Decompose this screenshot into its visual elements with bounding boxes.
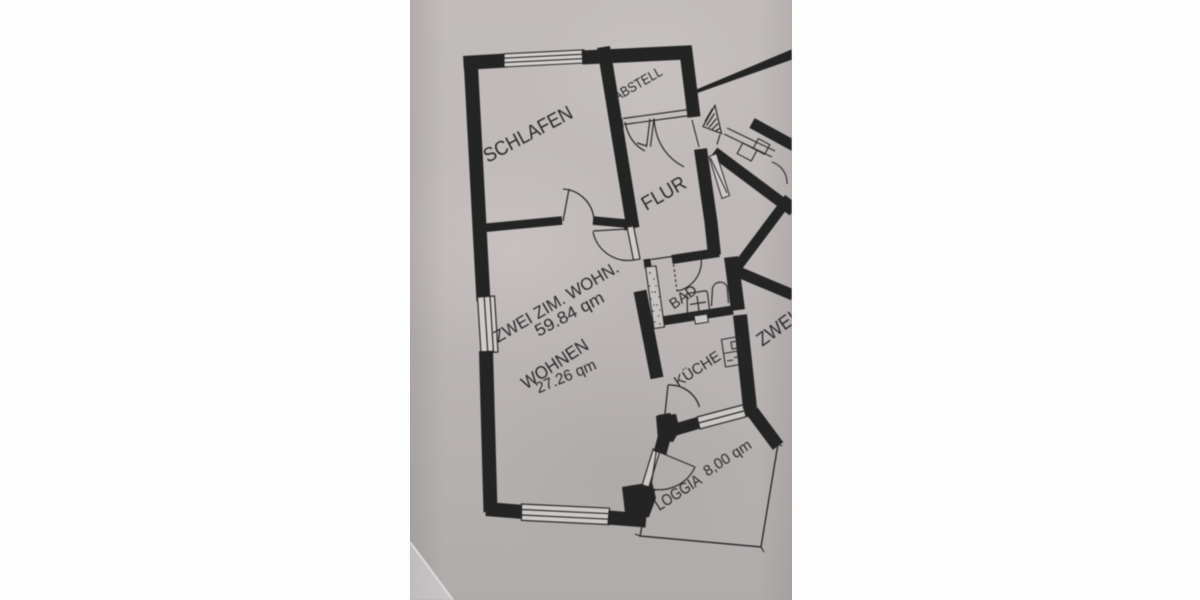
- svg-text:ZWEI: ZWEI: [753, 308, 801, 351]
- svg-text:SCHLAFEN: SCHLAFEN: [480, 102, 577, 167]
- svg-text:LOGGIA: LOGGIA: [652, 472, 705, 515]
- svg-text:BAD: BAD: [666, 282, 700, 313]
- svg-text:FLUR: FLUR: [638, 172, 691, 215]
- svg-text:KÜCHE: KÜCHE: [671, 347, 724, 390]
- svg-text:ABSTELL: ABSTELL: [610, 63, 665, 104]
- svg-text:8,00 qm: 8,00 qm: [700, 436, 755, 480]
